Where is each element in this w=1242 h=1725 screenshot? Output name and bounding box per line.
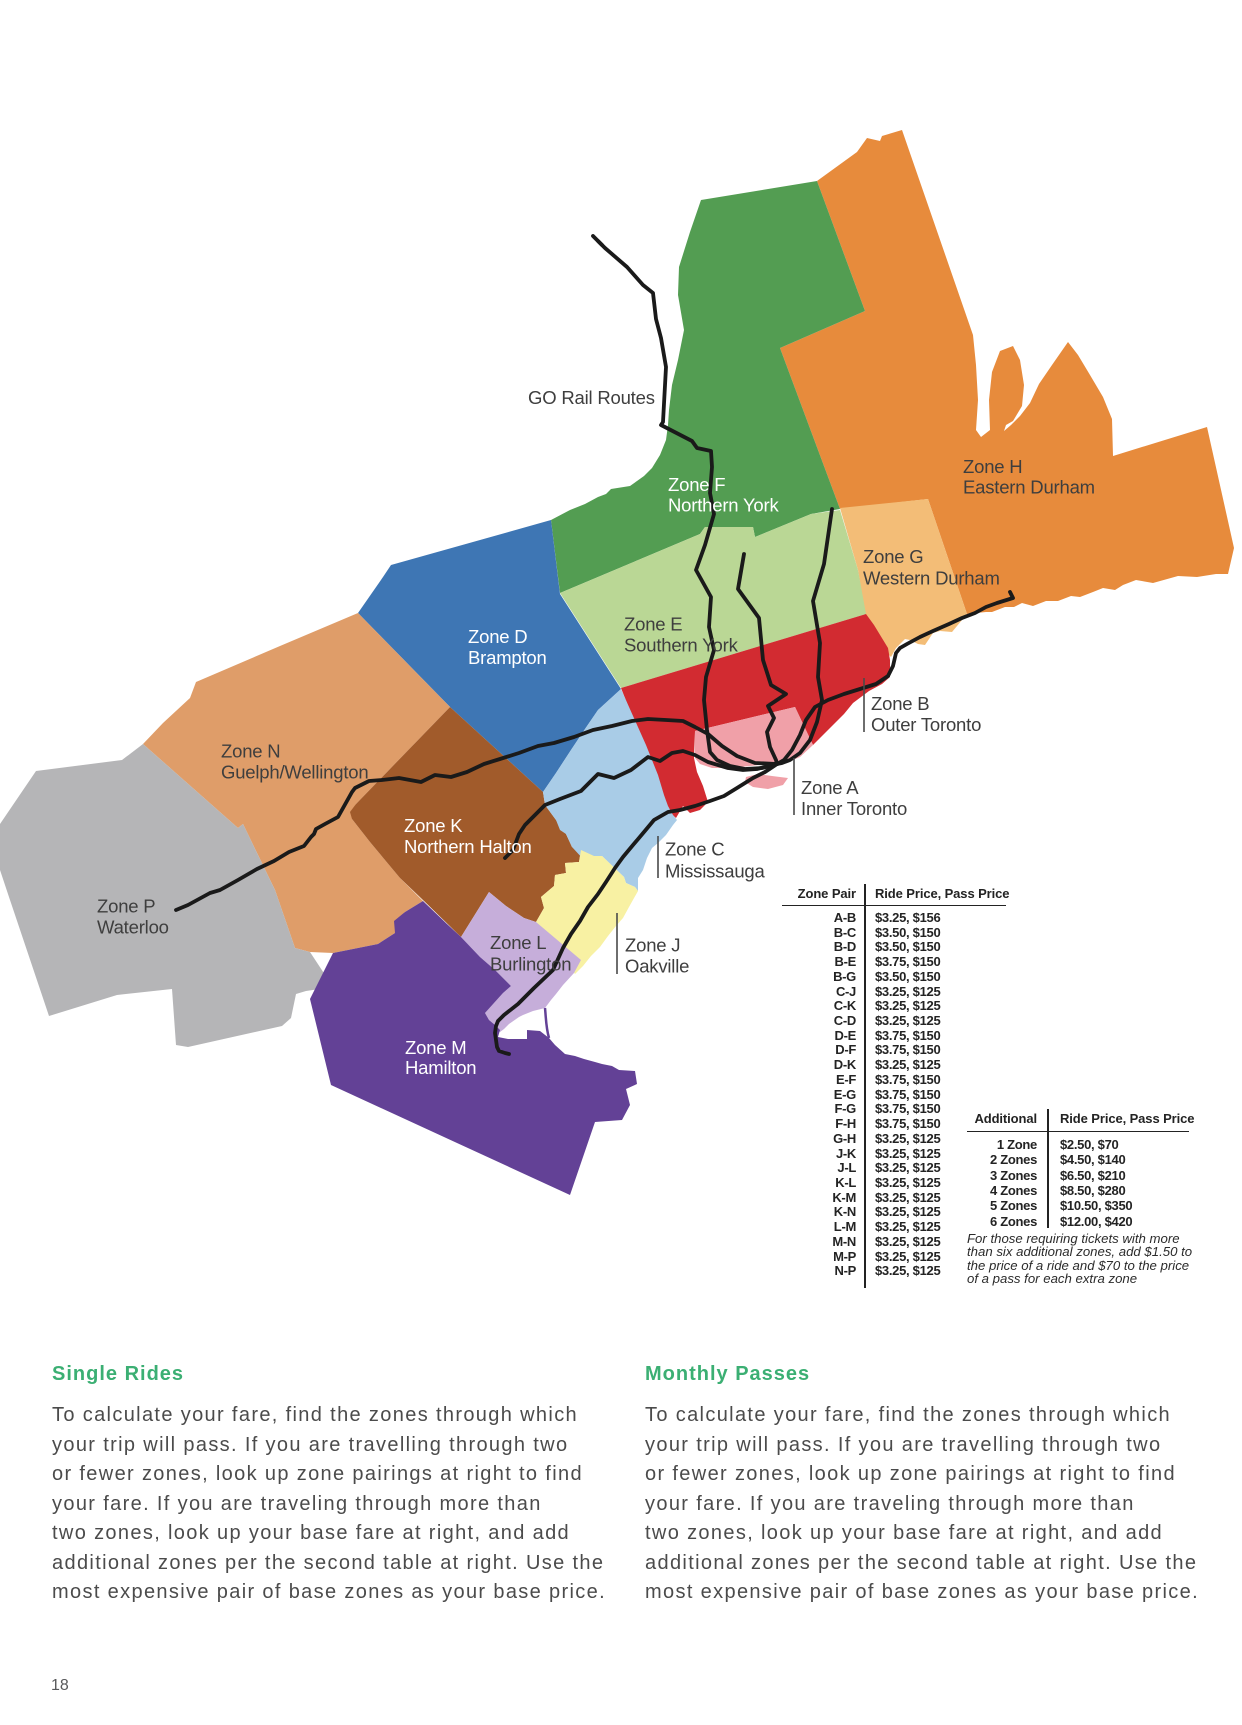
svg-text:Inner Toronto: Inner Toronto	[801, 798, 907, 819]
svg-text:Zone A: Zone A	[801, 777, 859, 798]
svg-text:Zone F: Zone F	[668, 474, 725, 495]
svg-text:Guelph/Wellington: Guelph/Wellington	[221, 762, 368, 783]
svg-text:GO Rail Routes: GO Rail Routes	[528, 387, 655, 408]
svg-text:Western Durham: Western Durham	[863, 568, 1000, 589]
svg-text:Zone P: Zone P	[97, 896, 155, 917]
svg-text:Oakville: Oakville	[625, 956, 689, 977]
svg-text:Burlington: Burlington	[490, 954, 571, 975]
svg-text:Zone D: Zone D	[468, 626, 527, 647]
svg-text:Northern York: Northern York	[668, 495, 779, 516]
svg-text:Eastern Durham: Eastern Durham	[963, 477, 1095, 498]
svg-text:Mississauga: Mississauga	[665, 861, 765, 882]
svg-text:Zone C: Zone C	[665, 839, 724, 860]
svg-text:Zone J: Zone J	[625, 935, 680, 956]
svg-text:Zone M: Zone M	[405, 1037, 467, 1058]
svg-text:Zone B: Zone B	[871, 693, 929, 714]
svg-text:Zone N: Zone N	[221, 741, 280, 762]
svg-text:Zone L: Zone L	[490, 932, 546, 953]
svg-text:Hamilton: Hamilton	[405, 1057, 476, 1078]
svg-text:Zone G: Zone G	[863, 546, 924, 567]
svg-text:Zone E: Zone E	[624, 614, 682, 635]
svg-text:Waterloo: Waterloo	[97, 917, 169, 938]
svg-text:Southern York: Southern York	[624, 635, 739, 656]
svg-text:Northern Halton: Northern Halton	[404, 836, 532, 857]
svg-text:Outer Toronto: Outer Toronto	[871, 714, 981, 735]
svg-text:Brampton: Brampton	[468, 647, 547, 668]
svg-text:Zone K: Zone K	[404, 815, 463, 836]
svg-text:Zone H: Zone H	[963, 456, 1022, 477]
